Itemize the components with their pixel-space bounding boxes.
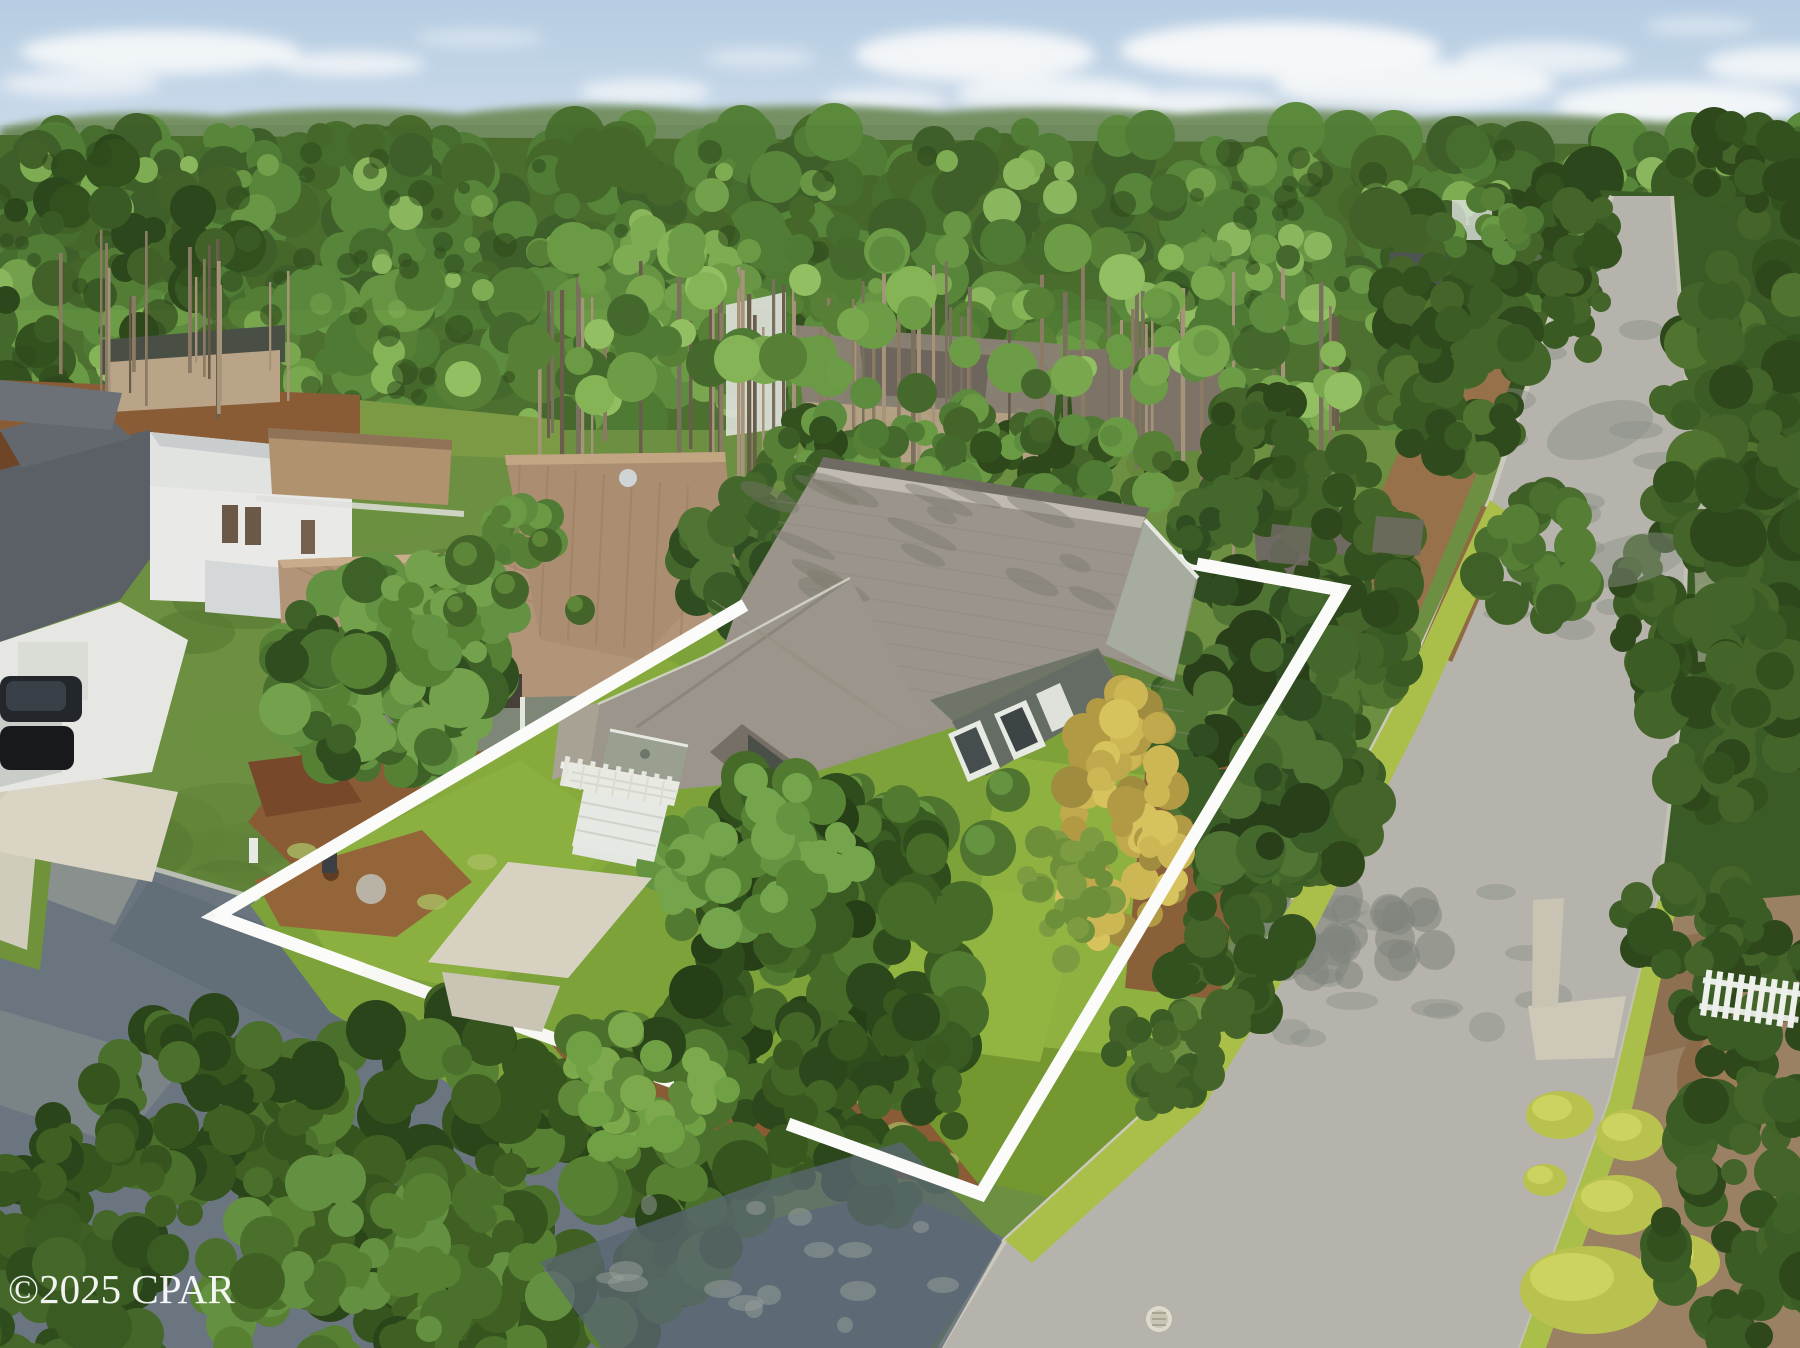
svg-text:©2025 CPAR: ©2025 CPAR <box>8 1266 235 1312</box>
